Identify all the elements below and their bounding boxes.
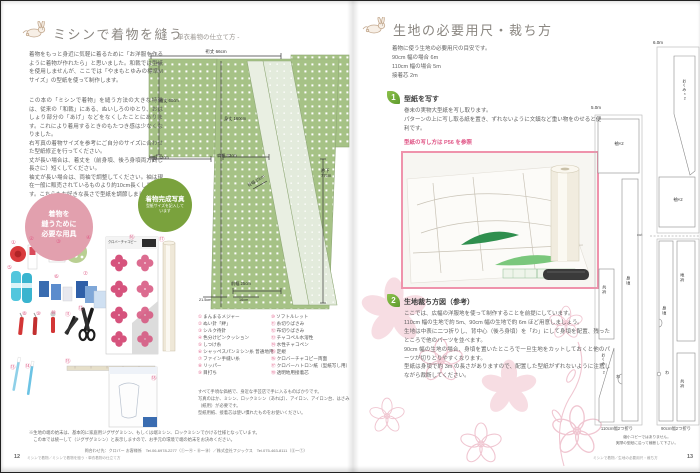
paper-roll — [551, 165, 579, 261]
tool-badge: ② — [29, 237, 34, 243]
diagram-90-length: 6.0m — [653, 40, 663, 45]
paragraph: 110cm 幅の生地で約 5m、90cm 幅の生地で約 6m ほど用意しましょう… — [404, 319, 610, 328]
diagram-110-length: 5.0m — [591, 105, 601, 110]
measure-erishita: 衿下 77cm — [321, 169, 335, 179]
green-circle-sub: 型紙サイズを記入しています — [138, 203, 192, 214]
tool-badge: ⑱ — [151, 377, 157, 383]
pattern-tracing-photo — [401, 151, 599, 289]
diagram-90-tomoeri: 共衿 — [680, 379, 684, 409]
diagram-110-wa: わ — [616, 374, 620, 380]
tool-list-item: ⑯クロバーチャコピー両面 — [271, 356, 350, 363]
left-page-footer: ミシンで着物／ミシンで着物を縫う・単衣着物の仕立て方 — [27, 456, 120, 461]
tools-photo-collage — [7, 231, 197, 431]
tools-note: すべて手頃な価格で、身近な手芸店で手に入るものばかりです。 写真のほか、ミシン、… — [198, 389, 356, 417]
tools-list-column-2: ⑩ソフトルレット ⑪糸切りばさみ ⑫布切りばさみ ⑬チャコペル水溶性 ⑭水性チャ… — [271, 314, 350, 377]
tool-photo-chacopy-package — [106, 237, 158, 354]
left-page-subtitle: ‐ 単衣着物の仕立て方 ‐ — [173, 31, 239, 41]
paragraph: パターンの上に写し取る紙を置き、ずれないように文鎮など重い物をのせると便利です。 — [404, 116, 606, 134]
tool-list-item: ④色分けピンクッション — [198, 335, 274, 342]
diagram-note-1: 縮小コピーではありません。 — [597, 435, 697, 440]
section-1-leaf-icon: 1 — [387, 91, 400, 104]
tool-photo-rippers — [18, 313, 37, 335]
measure-maehaba: 前幅 25cm — [231, 282, 251, 287]
section-2-text: ここでは、広幅の洋服地を使って制作することを前提にしています。 110cm 幅の… — [404, 310, 610, 381]
diagram-110-sleeve: 袖×2 — [599, 141, 639, 147]
left-page-title: ミシンで着物を縫う — [53, 24, 184, 43]
paragraph: 生地は中表に二つ折りし、背中心（後ろ身頃）を「わ」にして身頃を配置、残ったところ… — [404, 328, 610, 346]
tool-badge: ⑮ — [65, 360, 71, 366]
diagram-110-okumi: おくみ×2 — [601, 353, 605, 391]
requirement-line: 90cm 幅の場合 6m — [392, 54, 490, 63]
paragraph: 丈が長い場合は、着丈を（前身頃、後ろ身頃両方同じ長さに）短くしてください。 — [29, 157, 163, 174]
tool-list-item: ⑩ソフトルレット — [271, 314, 350, 321]
tool-badge: ⑧ — [22, 312, 27, 318]
tool-badge: ⑥ — [54, 275, 59, 281]
green-circle-title: 着物完成写真 — [138, 193, 192, 203]
tool-list-item: ⑫布切りばさみ — [271, 328, 350, 335]
bottom-note-line: この本では統一して（ジグザグミシン）と表示しますので、お手元の環境で端の始末をお… — [29, 437, 359, 444]
tools-pink-circle: 着物を 縫うために 必要な用具 — [25, 193, 93, 261]
diagram-110-migoro: 身頃 — [626, 276, 630, 316]
tool-list-item: ⑥シャッペスパンミシン糸 普通地用 — [198, 349, 274, 356]
tool-badge: ③ — [56, 240, 61, 246]
fabric-requirements: 着物に使う生地の必要用尺の目安です。 90cm 幅の場合 6m 110cm 幅の… — [392, 45, 490, 81]
tool-badge: ① — [11, 241, 16, 247]
tool-badge: ⑨ — [36, 312, 41, 318]
requirement-line: 接着芯 2m — [392, 72, 490, 81]
measure-sodetake: 袖丈 60cm — [159, 99, 179, 104]
section-2-heading: 生地裁ち方図（参考） — [404, 297, 474, 307]
section-1-heading: 型紙を写す — [404, 94, 439, 104]
tool-photo-interfacing-package — [109, 367, 157, 427]
left-body-paragraphs: この本の「ミシンで着物」を縫う方法の大きな特徴は、従来の「和裁」にある、ぬいしろ… — [29, 97, 163, 199]
tool-list-item: ⑪糸切りばさみ — [271, 321, 350, 328]
right-page-footer: ミシンで着物／生地の必要用尺・裁ち方 — [593, 456, 658, 461]
diagram-note-2: 実際の型紙に沿って裁断して下さい。 — [597, 441, 697, 446]
tool-list-item: ③シルク待針 — [198, 328, 274, 335]
bottom-note: ※生地の端の始末は、基本的に家庭用ジグザグミシン、もしくは端ミシン、ロックミシン… — [29, 430, 359, 444]
black-tube — [543, 269, 589, 280]
tool-photo-hand-thread — [76, 281, 106, 308]
tool-photo-machine-thread — [39, 281, 72, 301]
tools-list-column-1: ①まんまるメジャー ②ぬい針「絆」 ③シルク待針 ④色分けピンクッション ⑤しつ… — [198, 314, 274, 377]
left-intro-paragraph: 着物をもっと身近に気軽に着るために「お洋服を作るように着物が作れたら」と思いまし… — [29, 51, 163, 85]
diagram-110-caption: 110cm幅2つ折り — [589, 426, 645, 432]
tool-badge: ⑤ — [7, 266, 12, 272]
measure-sodehaba: 袖幅 33cm — [149, 156, 169, 161]
paragraph: 右写真の着物サイズを参考にご自分のサイズに合わせた型紙修正を行ってください。 — [29, 140, 163, 157]
tool-list-item: ⑬チャコペル水溶性 — [271, 335, 350, 342]
rabbit-sketch-icon — [361, 17, 389, 35]
tool-list-item: ②ぬい針「絆」 — [198, 321, 274, 328]
tool-badge: ⑦ — [83, 272, 88, 278]
pink-circle-line: 縫うために — [25, 220, 93, 230]
right-page-title: 生地の必要用尺・裁ち方 — [393, 20, 553, 39]
tool-badge: ⑭ — [25, 365, 31, 371]
tool-photo-basting-thread — [11, 271, 32, 303]
tool-badge: ④ — [86, 236, 91, 242]
requirement-line: 110cm 幅の場合 5m — [392, 63, 490, 72]
measure-katahaba: 肩幅 33cm — [217, 154, 237, 159]
tool-list-item: ⑰クロバーハトロン紙（型紙写し用） — [271, 363, 350, 370]
diagram-90-wa: わ — [665, 370, 669, 376]
measure-hem-left: 21.5cm — [199, 298, 211, 302]
diagram-90-cut-label: cut — [637, 232, 642, 237]
diagram-90-okumi: おくみ×2 — [682, 79, 686, 121]
tool-photo-thread-snips — [64, 316, 79, 335]
pieces-90 — [657, 56, 695, 421]
diagram-90-sleeve: 袖×2 — [660, 197, 696, 203]
paragraph: 巻末の実物大型紙を写し取ります。 — [404, 107, 606, 116]
tools-note-line: すべて手頃な価格で、身近な手芸店で手に入るものばかりです。 — [198, 389, 356, 396]
tool-list-item: ⑮定規 — [271, 349, 350, 356]
rabbit-sketch-icon — [21, 21, 49, 39]
tool-list-item: ⑱透明地用接着芯 — [271, 370, 350, 377]
measure-mitake: 身丈 160cm — [224, 117, 246, 122]
tool-list-item: ⑤しつけ糸 — [198, 342, 274, 349]
right-page-number: 13 — [687, 454, 693, 460]
finished-kimono-green-circle: 着物完成写真 型紙サイズを記入しています — [138, 178, 192, 232]
tool-badge: ⑫ — [78, 307, 84, 313]
tool-list-item: ⑧リッパー — [198, 363, 274, 370]
diagram-90-caption: 90cm幅2つ折り — [651, 426, 700, 432]
diagram-90-migoro: 身頃 — [662, 306, 666, 346]
paragraph: ここでは、広幅の洋服地を使って制作することを前提にしています。 — [404, 310, 610, 319]
diagram-90-jieri: 地衿 — [680, 273, 684, 303]
tool-badge: ⑬ — [10, 366, 16, 372]
tool-badge: ⑩ — [51, 311, 56, 317]
tool-list-item: ⑭水性チャコペン — [271, 342, 350, 349]
book-spread: ミシンで着物を縫う ‐ 単衣着物の仕立て方 ‐ 着物をもっと身近に気軽に着るため… — [0, 0, 700, 473]
section-1-text: 巻末の実物大型紙を写し取ります。 パターンの上に写し取る紙を置き、ずれないように… — [404, 107, 606, 133]
left-page-number: 12 — [14, 454, 20, 460]
tool-badge: ⑰ — [159, 238, 165, 244]
pattern-reference-note: 型紙の写し方は P56 を参照 — [404, 138, 472, 146]
tool-photo-chaco-pens — [12, 357, 34, 395]
tools-note-line: 型紙用紙、接着芯は使い慣れたものをお使いください。 — [198, 410, 356, 417]
paragraph: 90cm 幅の生地の場合、身頃を置いたところで一旦生地をカットしておくと他のパー… — [404, 346, 610, 364]
pink-circle-line: 必要な用具 — [25, 230, 93, 240]
tool-list-item: ⑨目打ち — [198, 370, 274, 377]
bottom-note-line: ※生地の端の始末は、基本的に家庭用ジグザグミシン、もしくは端ミシン、ロックミシン… — [29, 430, 359, 437]
contact-info: 問合わせ先：クロバー お客様係 Tel.06-6978-2277（①～④・⑧～⑱… — [51, 448, 341, 454]
tool-badge: ⑪ — [65, 313, 71, 319]
tool-badge: ⑯ — [129, 236, 135, 242]
pink-circle-line: 着物を — [25, 210, 93, 220]
tools-note-line: 写真のほか、ミシン、ロックミシン（あれば）、アイロン、アイロン台、はさみ（紙用）… — [198, 396, 356, 410]
tool-photo-tracing-paper-roll — [163, 241, 175, 351]
measure-yukitake: 裄丈 66cm — [186, 49, 246, 54]
paragraph: この本の「ミシンで着物」を縫う方法の大きな特徴は、従来の「和裁」にある、ぬいしろ… — [29, 97, 163, 140]
measure-hem-right: 16cm — [239, 298, 248, 302]
diagram-110-tomoeri: 共衿 — [602, 285, 606, 325]
requirement-line: 着物に使う生地の必要用尺の目安です。 — [392, 45, 490, 54]
paragraph: 型紙は身頃で約 3m の長さがありますので、配置した型紙がずれないように注意しな… — [404, 363, 610, 381]
tool-list-item: ①まんまるメジャー — [198, 314, 274, 321]
tool-list-item: ⑦ファイン手縫い糸 — [198, 356, 274, 363]
